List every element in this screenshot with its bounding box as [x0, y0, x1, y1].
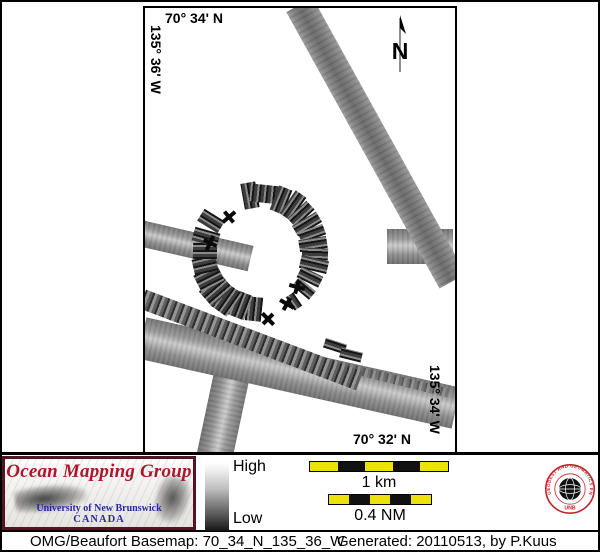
north-arrow: N — [385, 12, 415, 78]
scalebar — [328, 494, 432, 505]
panel-separator-top — [0, 452, 600, 455]
sonar-crossing-mark — [261, 312, 275, 326]
scalebar-segment — [411, 495, 431, 504]
scalebar-segment — [329, 495, 349, 504]
map-frame: 70° 34' N 135° 36' W 135° 34' W 70° 32' … — [143, 6, 457, 455]
omg-logo-title: Ocean Mapping Group — [5, 461, 193, 483]
north-arrow-graphic: N — [385, 12, 415, 78]
page-canvas: 70° 34' N 135° 36' W 135° 34' W 70° 32' … — [0, 0, 600, 552]
map-label-left-longitude: 135° 36' W — [148, 25, 164, 94]
scalebar-segment — [338, 462, 366, 471]
depth-colorbar — [205, 462, 229, 531]
scalebar-segment — [390, 495, 410, 504]
scalebar-segment — [393, 462, 421, 471]
scalebar-segment — [420, 462, 448, 471]
scalebar-label: 0.4 NM — [328, 507, 432, 525]
map-label-top-latitude: 70° 34' N — [165, 10, 223, 26]
unb-seal: GEODESY AND GEOMATICS ENGINEERING UNB — [544, 463, 596, 515]
unb-seal-graphic: GEODESY AND GEOMATICS ENGINEERING UNB — [544, 463, 596, 515]
statusbar-basemap-text: OMG/Beaufort Basemap: 70_34_N_135_36_W — [30, 533, 344, 550]
omg-logo-country: CANADA — [5, 514, 193, 525]
scalebar — [309, 461, 449, 472]
statusbar: OMG/Beaufort Basemap: 70_34_N_135_36_W G… — [0, 532, 600, 550]
omg-logo: Ocean Mapping Group University of New Br… — [2, 456, 196, 530]
colorbar-high-label: High — [233, 458, 266, 476]
statusbar-generated-text: Generated: 20110513, by P.Kuus — [337, 533, 557, 550]
map-label-bottom-latitude: 70° 32' N — [353, 431, 411, 447]
scalebar-segment — [365, 462, 393, 471]
scalebar-segment — [349, 495, 369, 504]
colorbar-low-label: Low — [233, 510, 262, 528]
scalebar-label: 1 km — [309, 474, 449, 492]
seal-bottom-text: UNB — [564, 506, 575, 512]
omg-logo-university: University of New Brunswick — [5, 503, 193, 514]
north-arrow-label: N — [392, 38, 409, 64]
sonar-crossing-mark — [222, 210, 237, 223]
map-label-right-longitude: 135° 34' W — [427, 365, 443, 434]
sonar-swath-band — [145, 317, 455, 428]
scalebar-segment — [370, 495, 390, 504]
scalebar-segment — [310, 462, 338, 471]
